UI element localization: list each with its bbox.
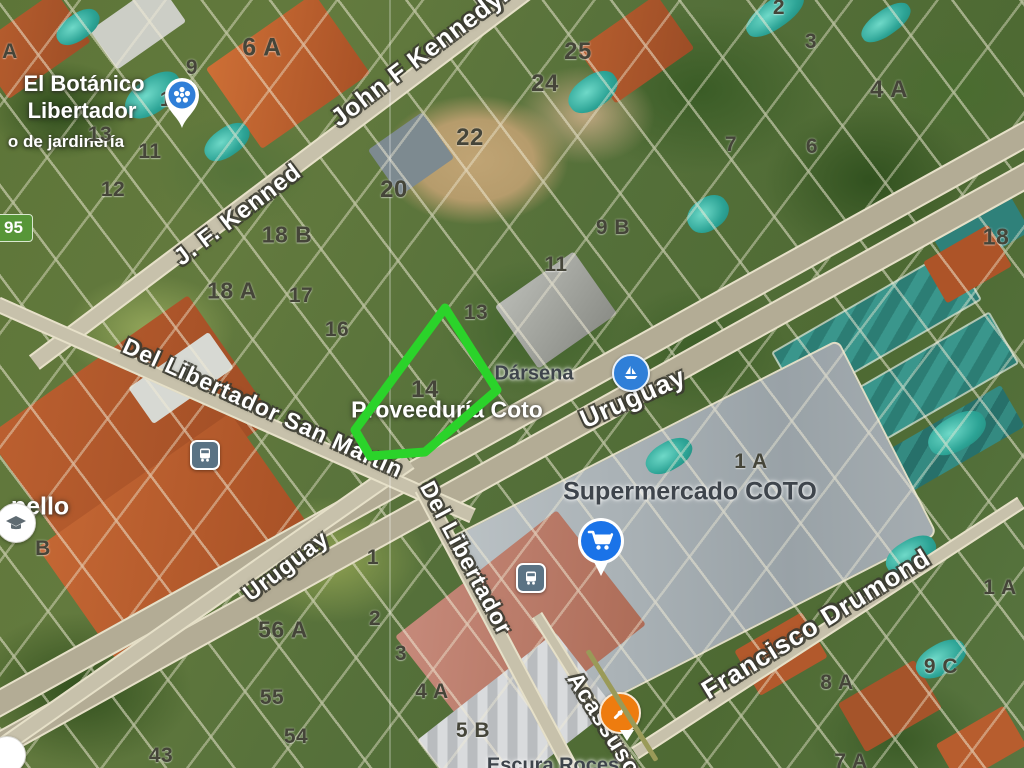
botanic-garden-pin[interactable] (160, 74, 204, 130)
poi-label-proveeduria-coto[interactable]: Proveeduría Coto (351, 397, 543, 424)
lot-number: 43 (149, 744, 173, 768)
lot-number: 1 A (734, 450, 767, 474)
lot-number: 5 B (456, 719, 490, 743)
lot-number: 25 (564, 38, 592, 66)
lot-number: 8 A (820, 671, 853, 695)
lot-number: 55 (260, 686, 284, 710)
lot-number: 54 (284, 725, 308, 749)
graduation-cap-icon (4, 511, 28, 535)
satellite-map-canvas[interactable]: J. F. Kenned John F Kennedy. Del Liberta… (0, 0, 1024, 768)
lot-number: 16 (325, 318, 349, 342)
lot-number: 4 A (415, 680, 448, 704)
supermarket-cart-pin[interactable] (575, 514, 627, 578)
lot-number: 9 C (924, 655, 958, 679)
lot-number: 2 (369, 607, 381, 631)
route-95-badge: 95 (0, 214, 33, 242)
lot-number: 3 (805, 30, 817, 54)
lot-number: 20 (380, 176, 408, 204)
lot-number: 3 (395, 642, 407, 666)
poi-label-bottom-partial[interactable]: Escura Roces (487, 755, 619, 768)
bus-stop-icon[interactable] (516, 563, 546, 593)
boat-icon (621, 363, 641, 383)
lot-number: 11 (544, 253, 567, 277)
lot-number: 9 B (596, 216, 630, 240)
lot-number: 1 A (983, 576, 1016, 600)
lot-number: 13 (464, 301, 488, 325)
lot-number: 18 B (262, 222, 313, 249)
lot-number: 6 A (242, 34, 281, 63)
lot-number: 2 (773, 0, 785, 20)
bus-icon (197, 447, 213, 463)
lot-number: 6 (806, 135, 818, 159)
lot-number: 18 (983, 224, 1010, 251)
lot-number: 1 (367, 546, 379, 570)
lot-number: 11 (138, 140, 161, 164)
lot-number: 17 (289, 284, 313, 308)
lot-number: 4 A (870, 76, 908, 104)
lot-number: A (2, 40, 18, 64)
lot-number: 12 (101, 178, 125, 202)
poi-label-supermercado-coto[interactable]: Supermercado COTO (563, 478, 817, 507)
lot-number: 7 A (834, 750, 867, 768)
bus-icon (523, 570, 539, 586)
lot-number: 22 (456, 124, 484, 152)
lot-number: 13 (88, 123, 112, 147)
poi-label-botanico-line1[interactable]: El Botánico (23, 71, 144, 97)
lot-number: 14 (411, 376, 439, 404)
poi-label-botanico-line2[interactable]: Libertador (28, 98, 137, 124)
orange-pin-tail (620, 730, 634, 741)
lot-number: 18 A (207, 278, 257, 305)
tile-seam (389, 0, 391, 768)
lot-number: 24 (531, 70, 559, 98)
poi-label-darsena[interactable]: Dársena (495, 363, 574, 386)
darsena-boat-pin[interactable] (612, 354, 650, 392)
lot-number: 7 (725, 133, 737, 157)
bus-stop-icon[interactable] (190, 440, 220, 470)
lot-number: B (35, 537, 51, 561)
lot-number: 56 A (258, 617, 308, 644)
